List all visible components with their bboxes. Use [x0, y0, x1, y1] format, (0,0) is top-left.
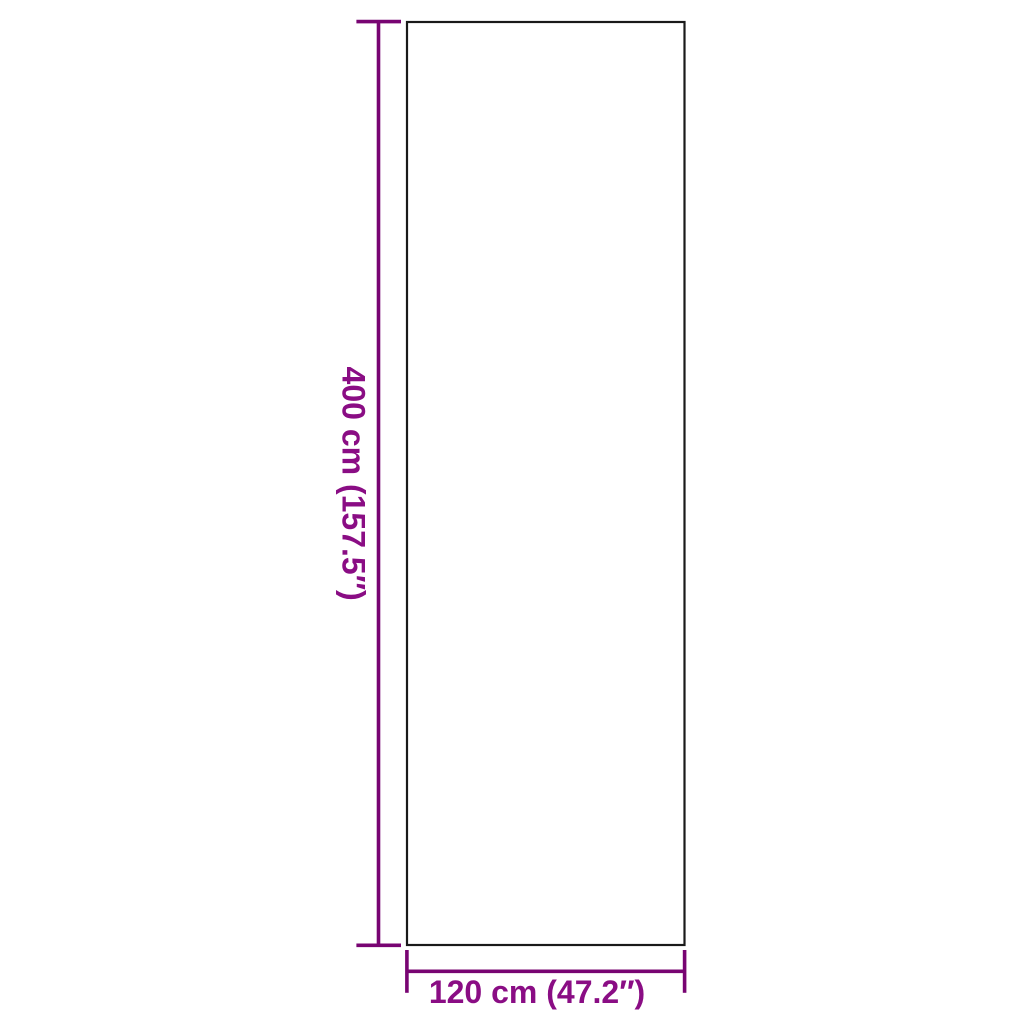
svg-text:120 cm (47.2″): 120 cm (47.2″) — [429, 974, 645, 1010]
svg-text:400 cm (157.5″): 400 cm (157.5″) — [336, 367, 372, 601]
